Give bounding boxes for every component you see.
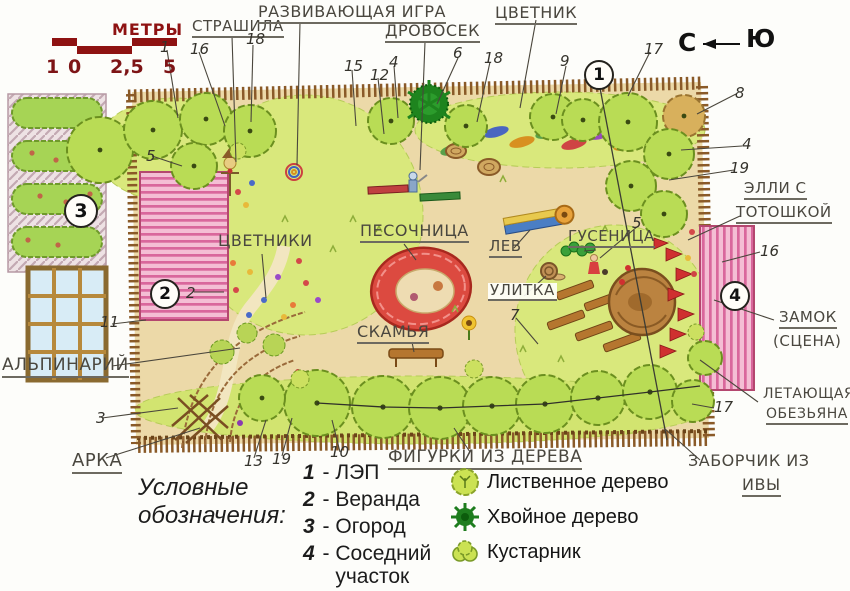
legend-item-label: Огород	[335, 515, 405, 538]
label-woodcutter: ДРОВОСЕК	[385, 23, 480, 43]
point-number: 3	[96, 409, 106, 427]
point-number: 10	[330, 443, 349, 461]
legend-items: 1 - ЛЭП 2 - Веранда 3 - Огород 4 - Сосед…	[303, 461, 453, 591]
point-number: 19	[730, 159, 749, 177]
label-sandbox: ПЕСОЧНИЦА	[360, 223, 469, 243]
garden-plan-page: МЕТРЫ 1 0 2,5 5 С Ю СТРАШИЛА РАЗВИВАЮЩАЯ…	[0, 0, 850, 591]
point-number: 18	[246, 30, 265, 48]
point-number: 13	[244, 452, 263, 470]
scale-tick: 1	[46, 56, 59, 78]
legend-item-number: 4	[303, 542, 315, 565]
legend-separator: -	[317, 488, 336, 511]
label-bench: СКАМЬЯ	[357, 324, 429, 344]
label-flying-monkey-line1: ЛЕТАЮЩАЯ	[763, 387, 850, 402]
scale-bar-graphic	[52, 38, 177, 54]
point-number: 6	[453, 44, 463, 62]
point-number: 17	[714, 398, 733, 416]
deciduous-tree-icon	[449, 466, 481, 498]
legend-item-number: 3	[303, 515, 315, 538]
legend-symbol-shrub: Кустарник	[449, 536, 668, 568]
legend-symbol-deciduous: Лиственное дерево	[449, 466, 668, 498]
point-number: 16	[190, 40, 209, 58]
point-number: 12	[370, 66, 389, 84]
legend-item-number: 2	[303, 488, 315, 511]
legend-item-label: ЛЭП	[335, 461, 379, 484]
legend-symbol-coniferous: Хвойное дерево	[449, 501, 668, 533]
scale-tick: 0	[68, 56, 81, 78]
label-flying-monkey-line2: ОБЕЗЬЯНА	[766, 407, 848, 425]
point-number: 9	[560, 52, 570, 70]
point-number: 15	[344, 57, 363, 75]
legend-item-label: Веранда	[335, 488, 420, 511]
label-willow-fence-line1: ЗАБОРЧИК ИЗ	[688, 453, 810, 470]
label-flower-garden: ЦВЕТНИК	[495, 5, 577, 25]
legend-item-number: 1	[303, 461, 315, 484]
legend-separator: -	[317, 542, 336, 565]
circled-marker-1: 1	[584, 60, 614, 90]
legend-separator: -	[317, 461, 336, 484]
label-flower-beds: ЦВЕТНИКИ	[218, 233, 313, 250]
point-number: 5	[632, 214, 642, 232]
coniferous-tree-icon	[449, 501, 481, 533]
point-number: 8	[735, 84, 745, 102]
label-castle: ЗАМОК	[779, 310, 837, 329]
circled-marker-2: 2	[150, 279, 180, 309]
legend-symbol-label: Кустарник	[487, 541, 581, 564]
shrub-icon	[449, 536, 481, 568]
point-number: 4	[742, 135, 752, 153]
label-snail: УЛИТКА	[488, 283, 557, 301]
point-number: 1	[160, 38, 170, 56]
label-elli-line1: ЭЛЛИ С	[744, 181, 807, 200]
label-arch: АРКА	[72, 452, 122, 474]
label-lion: ЛЕВ	[489, 239, 522, 258]
point-number: 11	[100, 313, 119, 331]
point-number: 5	[146, 147, 156, 165]
legend-item-neighbor: 4 - Соседний участок	[303, 542, 453, 588]
point-number: 2	[186, 284, 196, 302]
label-caterpillar: ГУСЕНИЦА	[568, 229, 655, 248]
point-number: 18	[484, 49, 503, 67]
legend-heading: Условные обозначения:	[138, 474, 318, 529]
compass-arrow-icon	[703, 39, 740, 49]
point-number: 4	[389, 53, 399, 71]
scale-tick: 5	[163, 56, 176, 78]
legend-item-veranda: 2 - Веранда	[303, 488, 453, 511]
circled-marker-4: 4	[720, 281, 750, 311]
legend-item-ogorod: 3 - Огород	[303, 515, 453, 538]
circled-marker-3: 3	[64, 194, 98, 228]
point-number: 7	[510, 306, 520, 324]
point-number: 19	[272, 450, 291, 468]
legend-symbol-label: Хвойное дерево	[487, 506, 638, 529]
legend-item-lep: 1 - ЛЭП	[303, 461, 453, 484]
legend-separator: -	[317, 515, 336, 538]
point-number: 16	[760, 242, 779, 260]
compass-south-label: Ю	[746, 24, 775, 53]
label-elli-line2: ТОТОШКОЙ	[736, 205, 832, 224]
legend-symbol-label: Лиственное дерево	[487, 471, 668, 494]
scale-bar-title: МЕТРЫ	[112, 20, 183, 39]
label-willow-fence-line2: ИВЫ	[742, 477, 781, 497]
scale-tick: 2,5	[110, 56, 144, 78]
legend-symbols: Лиственное дерево Хвойное дерево	[449, 466, 668, 571]
legend-item-label: Соседний участок	[335, 542, 453, 588]
label-stage: (СЦЕНА)	[773, 334, 841, 350]
point-number: 17	[644, 40, 663, 58]
stage	[609, 269, 675, 335]
label-alpinarium: АЛЬПИНАРИЙ	[2, 357, 129, 378]
compass-north-label: С	[678, 28, 696, 57]
